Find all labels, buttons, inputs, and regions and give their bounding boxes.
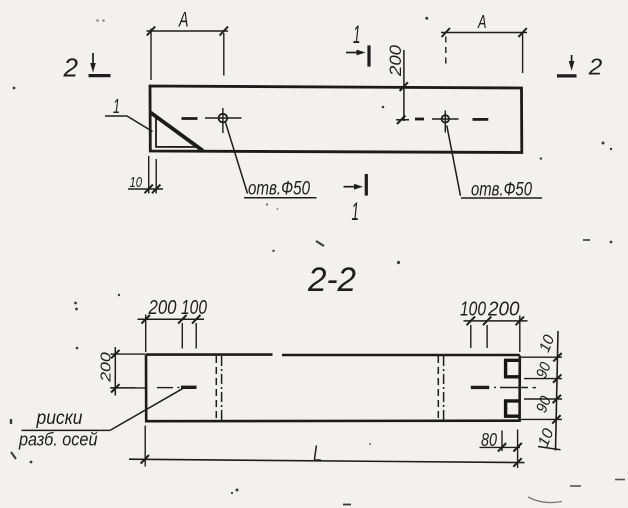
svg-text:А: А (178, 9, 189, 32)
svg-text:L: L (313, 441, 322, 466)
svg-text:100: 100 (181, 297, 207, 319)
svg-text:200: 200 (387, 44, 405, 77)
svg-text:1: 1 (352, 198, 360, 226)
svg-text:1: 1 (113, 96, 120, 118)
svg-text:2: 2 (588, 54, 603, 80)
svg-text:1: 1 (353, 21, 361, 49)
svg-text:отв.Ф50: отв.Ф50 (471, 180, 532, 201)
svg-text:200: 200 (148, 297, 177, 319)
svg-text:200: 200 (97, 352, 114, 383)
svg-text:разб. осей: разб. осей (18, 428, 97, 449)
svg-text:2-2: 2-2 (307, 261, 356, 299)
svg-text:2: 2 (62, 53, 78, 83)
svg-text:200: 200 (487, 298, 519, 320)
svg-text:отв.Ф50: отв.Ф50 (248, 179, 310, 200)
svg-text:10: 10 (130, 174, 143, 191)
svg-text:риски: риски (36, 408, 83, 429)
svg-text:100: 100 (460, 298, 486, 320)
svg-text:А: А (477, 12, 486, 32)
